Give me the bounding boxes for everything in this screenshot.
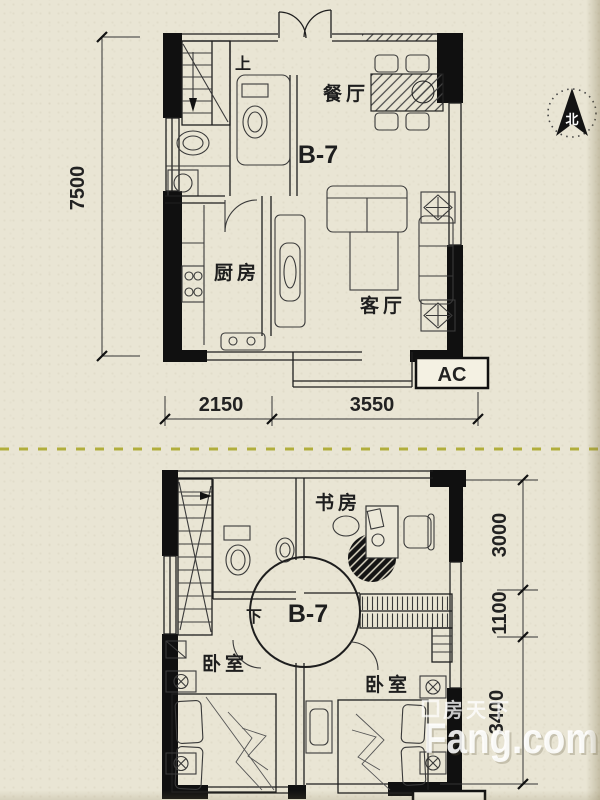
floor1-plan: AC 餐厅 B-7 厨房 客厅 上 7500 2150 3550 (67, 10, 488, 426)
bathroom-floor1 (166, 41, 297, 196)
window-hatch (362, 35, 436, 41)
decor-box-top (421, 192, 455, 223)
watermark: 房天下 Fang.com Fang.com (423, 698, 600, 765)
stairs-up (182, 41, 230, 125)
dim-text-7500: 7500 (67, 166, 89, 211)
study-furniture (333, 506, 434, 582)
stairs-down (178, 479, 212, 635)
kitchen-sink-icon (221, 333, 265, 350)
floorplan-page: AC 餐厅 B-7 厨房 客厅 上 7500 2150 3550 (0, 0, 600, 800)
desk-chair-icon (404, 516, 431, 548)
room-label-bedroom-left: 卧室 (202, 652, 248, 675)
dim-text-3550: 3550 (350, 394, 395, 416)
wardrobe-icon (360, 594, 452, 662)
desk-icon (366, 506, 398, 558)
ac-label-floor1: AC (438, 364, 467, 386)
armchair-icon (333, 516, 359, 536)
dimension-bottom: 2150 3550 (160, 392, 483, 426)
washbasin-icon (177, 131, 209, 155)
room-label-dining: 餐厅 (323, 82, 369, 105)
stove-icon (182, 266, 204, 302)
unit-label-floor1: B-7 (298, 141, 338, 169)
toilet-icon (243, 106, 267, 138)
floorplan-image: AC 餐厅 B-7 厨房 客厅 上 7500 2150 3550 (0, 0, 600, 800)
dim-text-3000: 3000 (489, 513, 511, 558)
stairs-up-label: 上 (235, 55, 251, 73)
nightstand-flower-3 (420, 676, 446, 698)
room-label-kitchen: 厨房 (214, 261, 260, 284)
dim-text-1100: 1100 (489, 591, 511, 634)
coffee-table-icon (350, 232, 398, 290)
pillow-icon (175, 700, 203, 743)
compass: 北 (548, 88, 596, 137)
shelf-icon (432, 628, 452, 662)
bathroom-floor2 (224, 526, 294, 575)
toilet-tank (242, 84, 268, 97)
room-label-living: 客厅 (360, 294, 406, 317)
north-label: 北 (565, 112, 578, 127)
dining-set (371, 55, 443, 130)
unit-label-floor2: B-7 (288, 600, 328, 628)
room-label-bedroom-right: 卧室 (365, 673, 411, 696)
dim-text-2150: 2150 (199, 394, 244, 416)
toilet-tank-2 (224, 526, 250, 540)
entry-door (279, 10, 331, 38)
stairs-down-label: 下 (246, 609, 262, 626)
room-label-study: 书房 (315, 491, 361, 514)
watermark-en: Fang.com (424, 715, 598, 763)
dimension-left-7500: 7500 (67, 32, 140, 361)
